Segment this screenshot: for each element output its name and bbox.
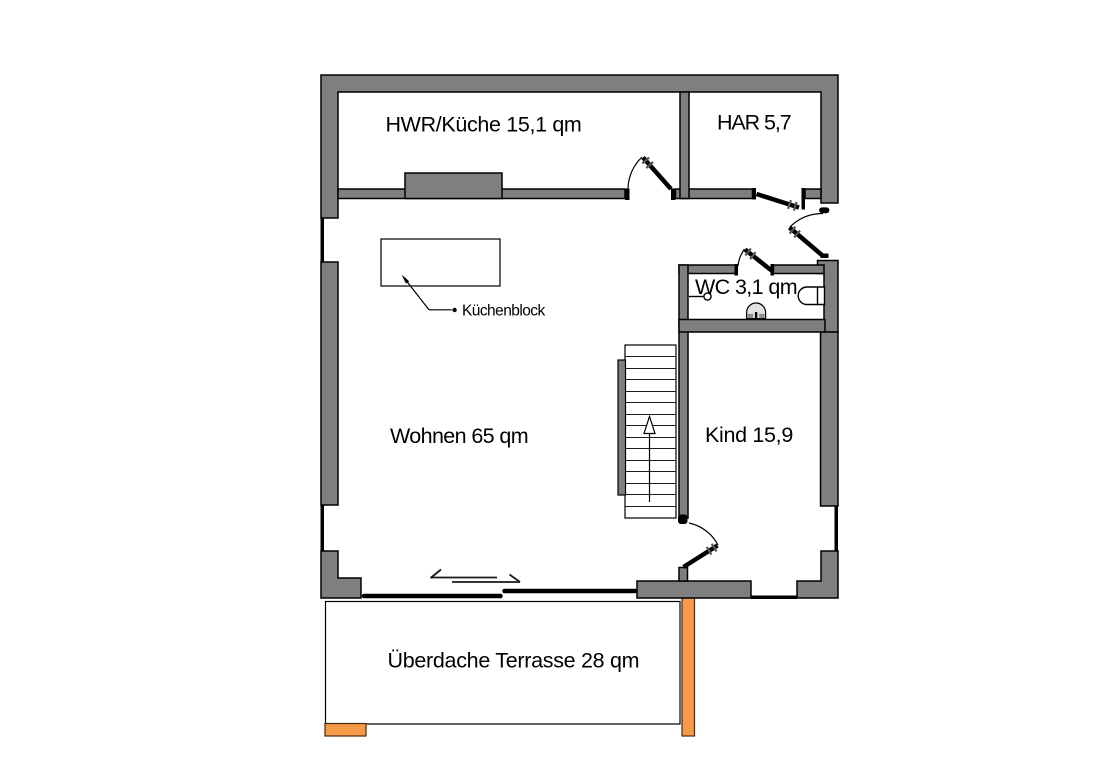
svg-text:Kind 15,9: Kind 15,9 bbox=[705, 423, 793, 447]
svg-text:WC 3,1 qm: WC 3,1 qm bbox=[695, 275, 797, 299]
svg-text:HAR 5,7: HAR 5,7 bbox=[717, 111, 791, 135]
svg-text:HWR/Küche 15,1 qm: HWR/Küche 15,1 qm bbox=[386, 113, 582, 137]
svg-text:Überdache Terrasse 28 qm: Überdache Terrasse 28 qm bbox=[388, 649, 640, 673]
svg-text:Wohnen 65 qm: Wohnen 65 qm bbox=[390, 424, 528, 448]
svg-text:Küchenblock: Küchenblock bbox=[462, 303, 546, 320]
